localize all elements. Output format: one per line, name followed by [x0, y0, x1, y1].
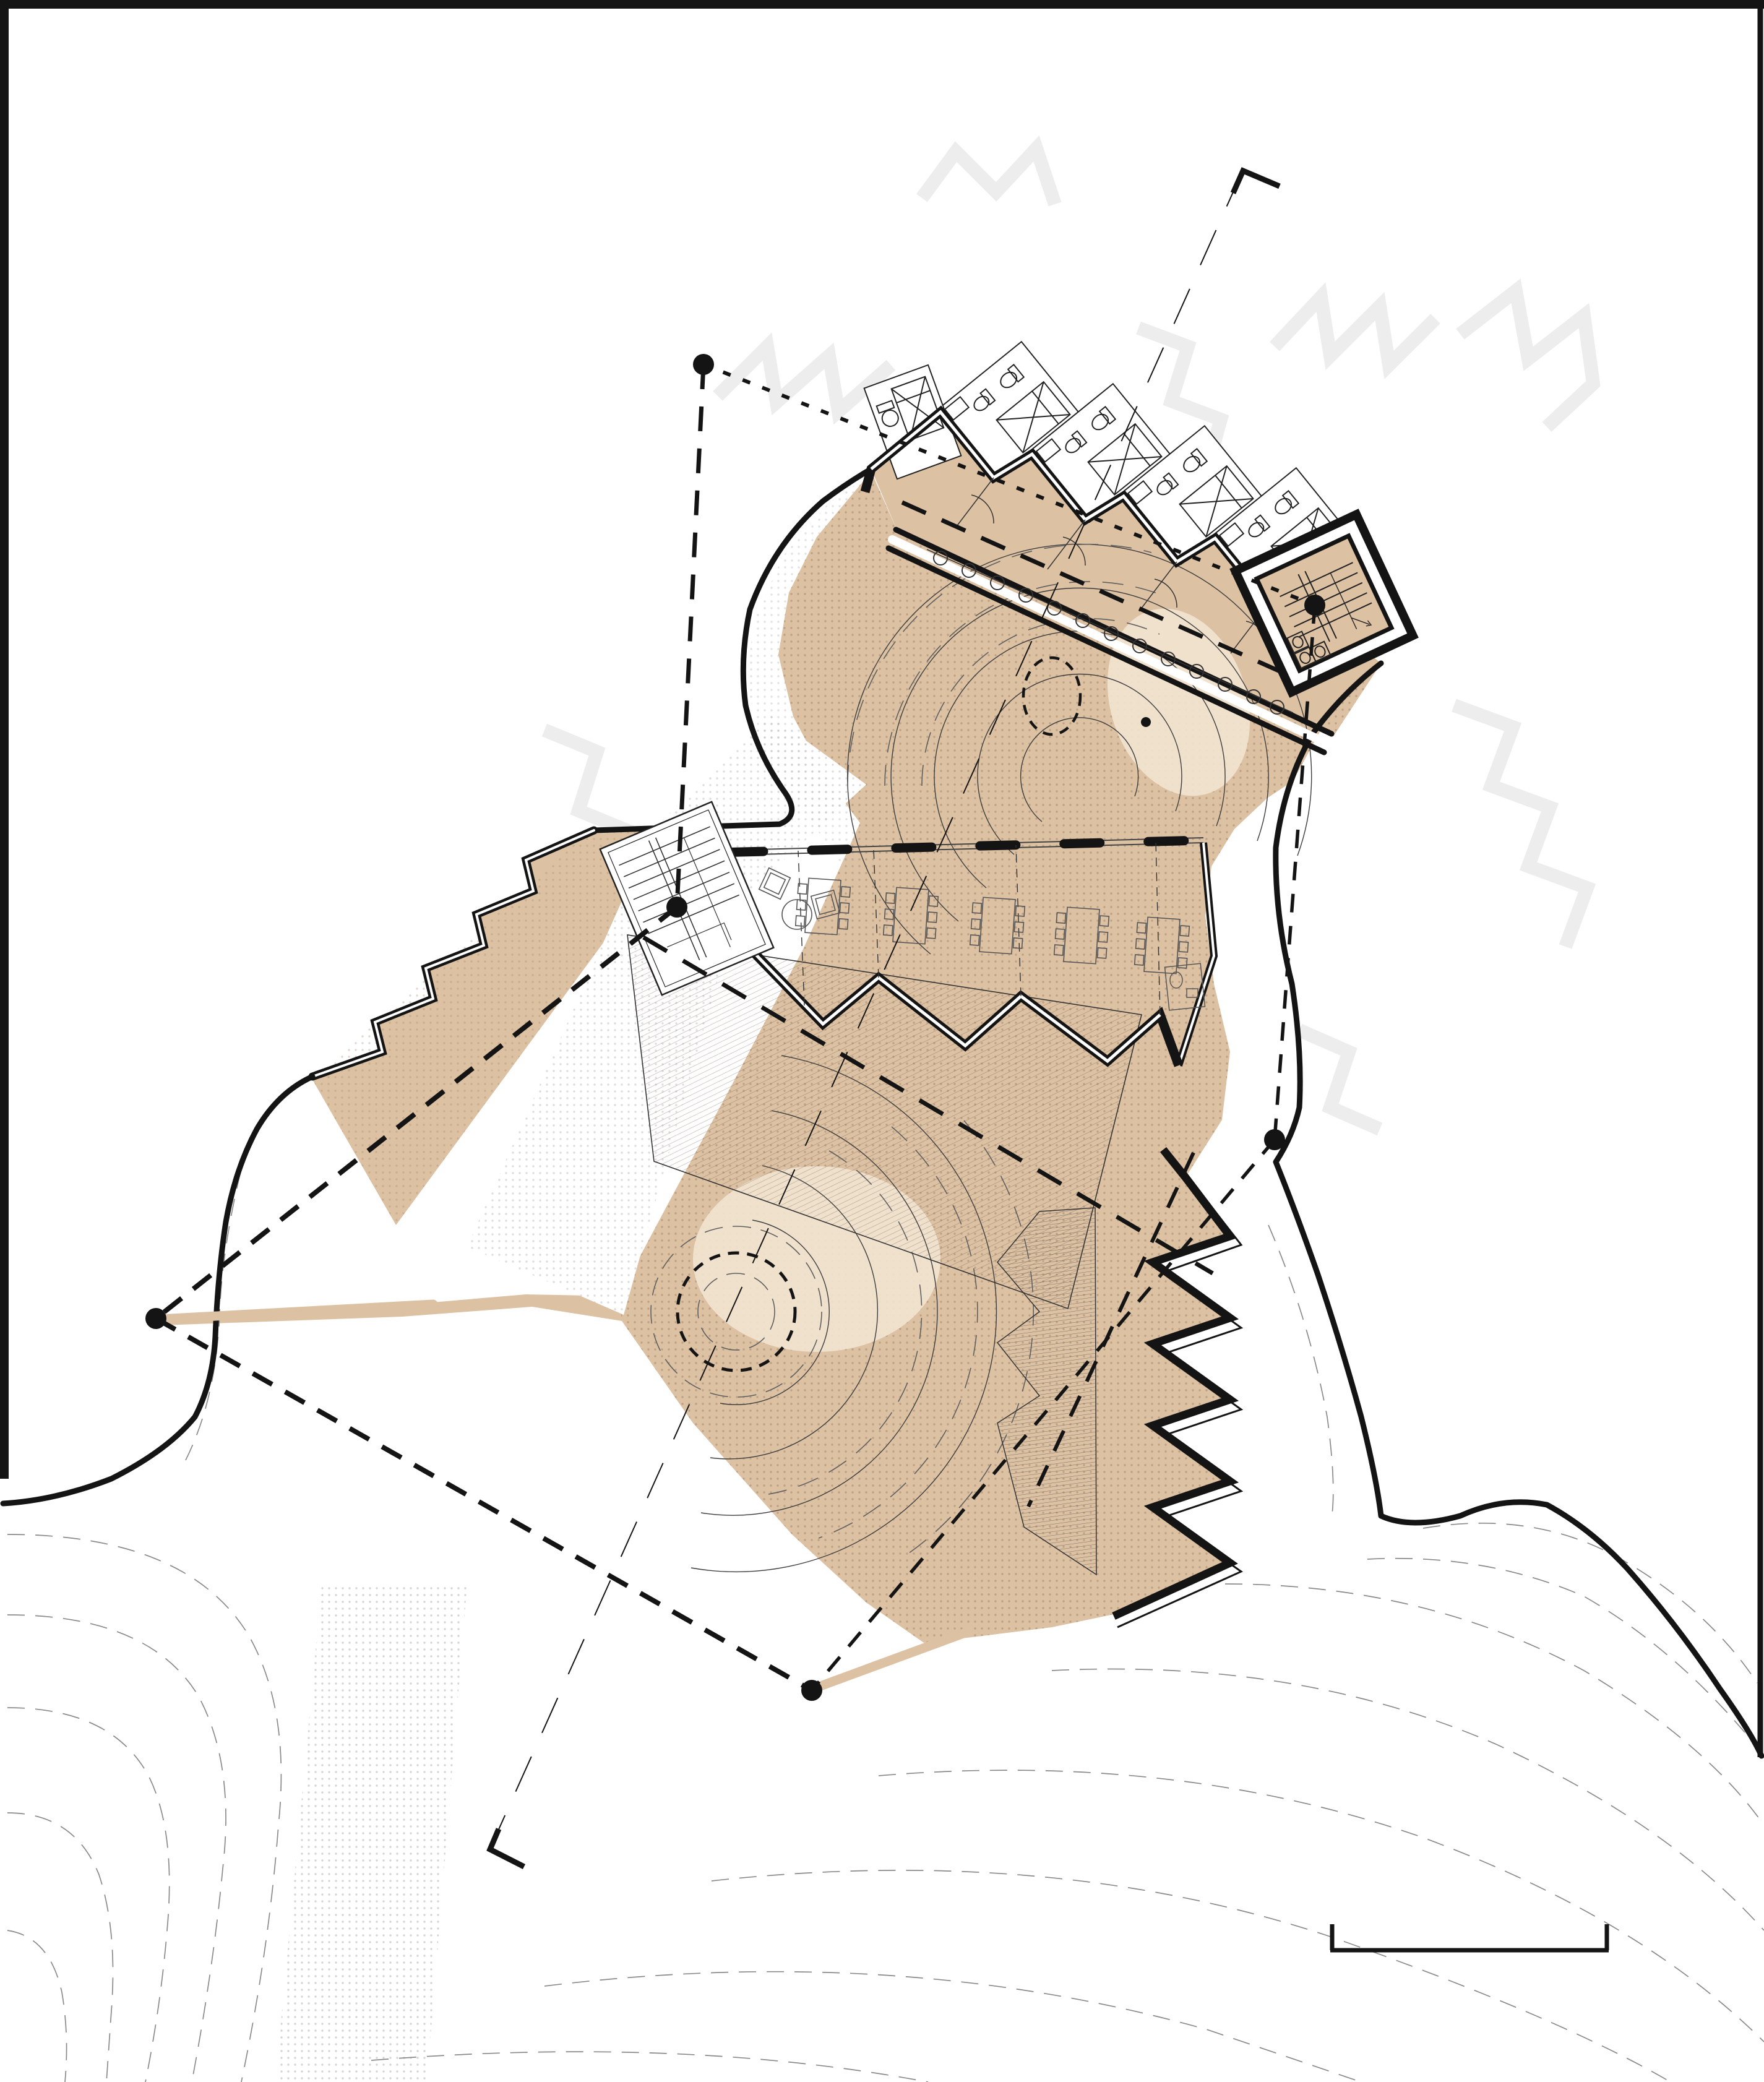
decor-zigzag [1454, 705, 1587, 947]
survey-point-d [1264, 1129, 1285, 1150]
section-mark-top [1233, 171, 1280, 193]
marker-dot-courtyard [1141, 717, 1151, 727]
survey-point-f [801, 1680, 822, 1701]
section-mark-bottom [490, 1829, 524, 1867]
scale-bar [1330, 1924, 1609, 1950]
survey-point-b [666, 897, 687, 918]
decor-zigzag [922, 148, 1055, 204]
coastline-southwest [3, 1077, 312, 1503]
decor-zigzag [1275, 297, 1435, 365]
survey-point-a [693, 354, 714, 375]
decor-zigzag [1460, 291, 1593, 427]
survey-point-c [1304, 595, 1325, 616]
survey-point-e [145, 1308, 166, 1329]
coastline-east [1276, 663, 1762, 1756]
site-plan-page [0, 0, 1764, 2082]
decor-zigzag [1299, 1030, 1380, 1129]
bottom-path-dots [275, 1584, 467, 2082]
site-plan-drawing [0, 0, 1764, 2082]
